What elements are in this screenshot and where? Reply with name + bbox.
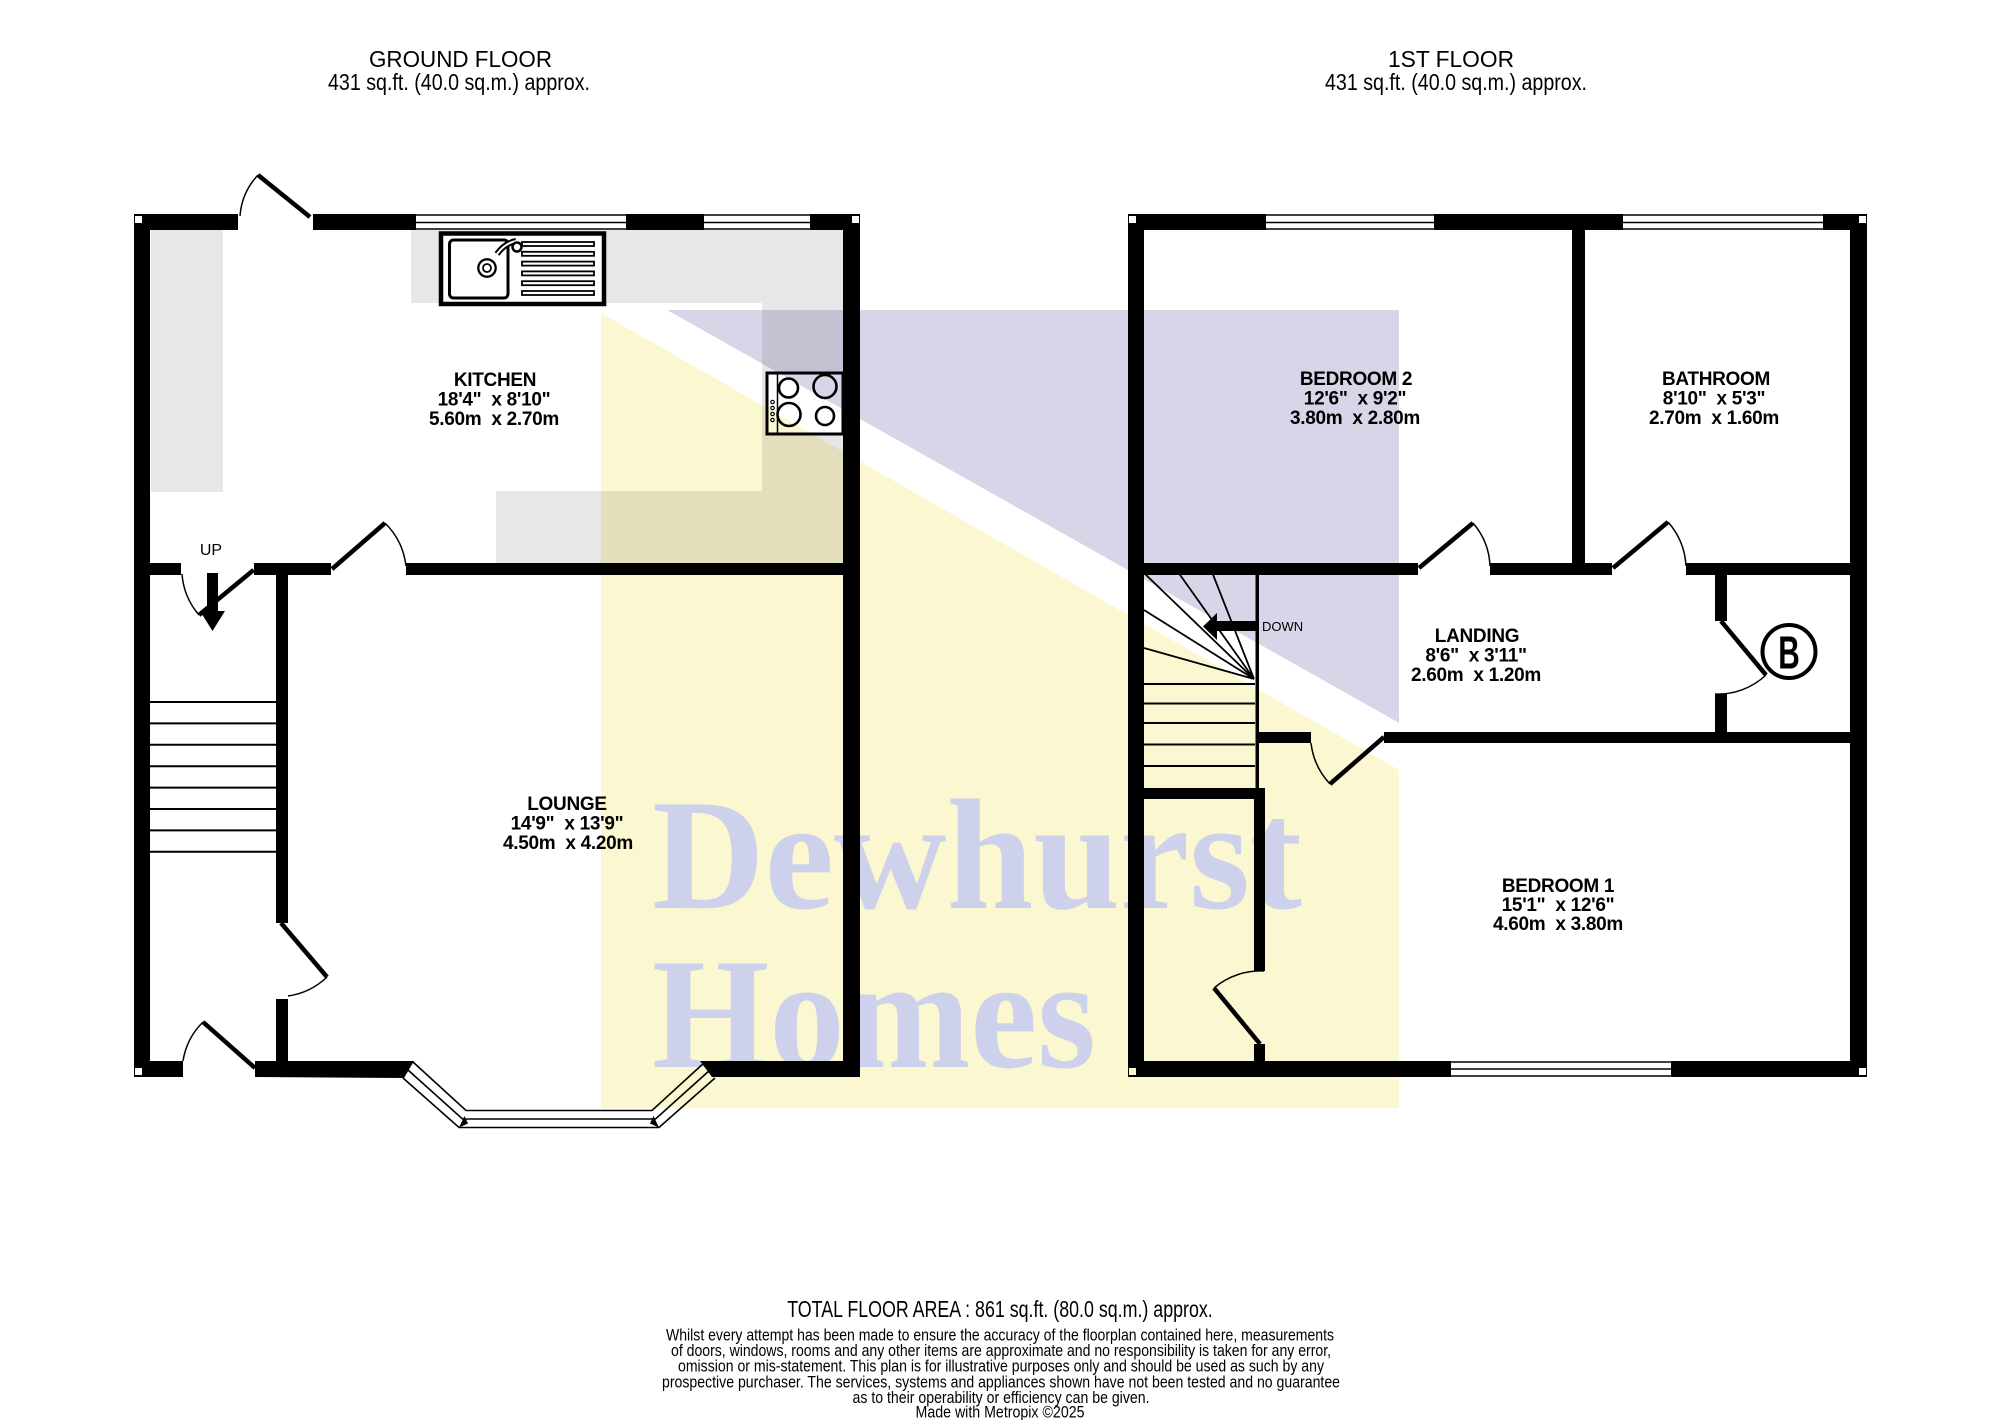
svg-text:Made with Metropix ©2025: Made with Metropix ©2025 bbox=[916, 1403, 1085, 1420]
svg-text:2.60m x 1.20m: 2.60m x 1.20m bbox=[1411, 665, 1541, 686]
svg-text:8'6" x 3'11": 8'6" x 3'11" bbox=[1425, 646, 1526, 667]
svg-text:431 sq.ft. (40.0 sq.m.) approx: 431 sq.ft. (40.0 sq.m.) approx. bbox=[328, 69, 590, 95]
svg-text:431 sq.ft. (40.0 sq.m.) approx: 431 sq.ft. (40.0 sq.m.) approx. bbox=[1325, 69, 1587, 95]
svg-text:LANDING: LANDING bbox=[1435, 626, 1519, 647]
svg-text:Homes: Homes bbox=[652, 927, 1096, 1102]
svg-text:5.60m x 2.70m: 5.60m x 2.70m bbox=[429, 409, 559, 430]
svg-text:LOUNGE: LOUNGE bbox=[527, 794, 606, 815]
svg-text:KITCHEN: KITCHEN bbox=[454, 370, 536, 391]
svg-text:BEDROOM 1: BEDROOM 1 bbox=[1502, 876, 1615, 897]
svg-text:BATHROOM: BATHROOM bbox=[1662, 369, 1770, 390]
svg-text:18'4" x 8'10": 18'4" x 8'10" bbox=[438, 390, 551, 411]
svg-text:B: B bbox=[1778, 627, 1800, 679]
svg-text:TOTAL FLOOR AREA : 861 sq.ft.: TOTAL FLOOR AREA : 861 sq.ft. (80.0 sq.m… bbox=[787, 1296, 1213, 1322]
svg-text:4.60m x 3.80m: 4.60m x 3.80m bbox=[1493, 914, 1623, 935]
svg-text:15'1" x 12'6": 15'1" x 12'6" bbox=[1502, 895, 1615, 916]
svg-text:8'10" x 5'3": 8'10" x 5'3" bbox=[1663, 389, 1765, 410]
svg-text:UP: UP bbox=[200, 542, 222, 559]
svg-text:Dewhurst: Dewhurst bbox=[652, 768, 1302, 943]
svg-text:2.70m x 1.60m: 2.70m x 1.60m bbox=[1649, 408, 1779, 429]
